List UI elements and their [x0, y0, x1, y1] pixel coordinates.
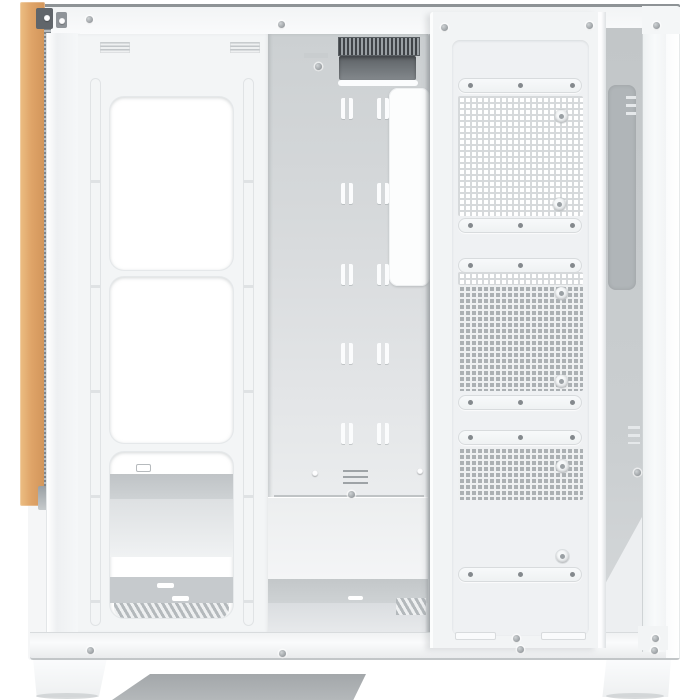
- screw-dot: [518, 263, 523, 268]
- psu-vent-stamp: [343, 470, 368, 484]
- screw-dot: [570, 223, 575, 228]
- screw-dot-light: [44, 15, 50, 21]
- top-right-corner: [642, 6, 680, 34]
- screw-dot: [518, 572, 523, 577]
- label-strip: [304, 53, 328, 58]
- thumbscrew-hole: [556, 550, 569, 563]
- fan-bracket-panel: [78, 34, 270, 633]
- mesh-panel: [430, 12, 598, 648]
- screw-dot: [468, 400, 473, 405]
- screw-dot: [468, 435, 473, 440]
- small-vent-slots: [626, 96, 636, 118]
- screw-dot: [518, 435, 523, 440]
- bracket-rail-right: [243, 78, 254, 626]
- cable-tie-slot: [377, 264, 389, 285]
- screw-head: [517, 646, 524, 653]
- interior-light-band: [110, 499, 233, 557]
- screw-dot-light: [417, 468, 423, 474]
- interior-lower-band: [110, 577, 233, 603]
- fan-cutout-2: [110, 277, 233, 443]
- photo-caption: White mid-tower PC case, open side view …: [0, 0, 1, 1]
- latch-mark: [136, 464, 151, 472]
- fan-cutout-1: [110, 97, 233, 270]
- screw-dot: [570, 83, 575, 88]
- screw-dot: [468, 572, 473, 577]
- screw-dot: [570, 263, 575, 268]
- cable-tie-slot: [377, 343, 389, 364]
- screw-head: [86, 16, 93, 23]
- under-case-shadow: [112, 674, 366, 700]
- perforation-grid: [458, 447, 583, 500]
- foot-shadow-right: [606, 693, 664, 699]
- thumbscrew-hole: [555, 287, 568, 300]
- rear-vent-fins: [338, 37, 420, 56]
- screw-head: [278, 21, 285, 28]
- screw-head: [348, 491, 355, 498]
- cable-tie-slot: [377, 98, 389, 119]
- wood-accent-strip: [20, 2, 45, 506]
- small-vent-slots: [628, 426, 640, 444]
- screw-head: [513, 635, 520, 642]
- screw-dot: [518, 223, 523, 228]
- screw-dot: [468, 263, 473, 268]
- motherboard-tray: [268, 34, 428, 634]
- screw-head: [651, 647, 658, 654]
- mounting-slot-bar: [458, 78, 582, 93]
- thumbscrew-hole: [556, 460, 569, 473]
- screw-head: [279, 650, 286, 657]
- screw-head: [586, 22, 593, 29]
- case-foot-right: [601, 658, 671, 697]
- bottom-vent-grille: [396, 598, 426, 615]
- screw-head: [653, 22, 660, 29]
- perforation-grid: [458, 272, 583, 285]
- cable-tie-slot: [341, 423, 353, 444]
- foot-shadow-left: [36, 693, 98, 699]
- screw-head: [315, 63, 322, 70]
- cable-tie-slot: [341, 183, 353, 204]
- floor-vent-grille: [114, 603, 229, 618]
- cable-tie-slot: [341, 98, 353, 119]
- mounting-slot-bar: [458, 395, 582, 410]
- cable-tie-slot: [377, 423, 389, 444]
- slot-mark: [172, 596, 189, 601]
- screw-head: [441, 24, 448, 31]
- io-recess: [339, 56, 416, 80]
- mounting-slot-bar: [458, 567, 582, 582]
- product-photo: White mid-tower PC case, open side view …: [0, 0, 700, 700]
- screw-dot: [518, 400, 523, 405]
- slot-mark: [157, 583, 174, 588]
- screw-dot: [570, 435, 575, 440]
- screw-dot: [468, 223, 473, 228]
- fan-cutout-3: [110, 452, 233, 618]
- mounting-slot-bar: [458, 258, 582, 273]
- bracket-rail-left: [90, 78, 101, 626]
- thumbscrew-hole: [553, 198, 566, 211]
- recess-highlight-bar: [338, 80, 418, 86]
- thumbscrew-hole: [555, 375, 568, 388]
- cable-tie-slot: [341, 264, 353, 285]
- panel-bottom-slot: [541, 632, 586, 640]
- cable-tie-slot: [377, 183, 389, 204]
- right-frame-column: [642, 6, 666, 652]
- screw-dot-light: [59, 18, 65, 24]
- vent-stamp: [100, 42, 130, 53]
- rear-interior-gap: [606, 28, 642, 642]
- mounting-slot-bar: [458, 218, 582, 233]
- interior-band: [110, 474, 233, 499]
- front-frame-strip: [46, 33, 80, 633]
- screw-head: [634, 469, 641, 476]
- cpu-cutout-plate: [389, 88, 430, 286]
- screw-dot: [570, 400, 575, 405]
- screw-head: [87, 647, 94, 654]
- thumbscrew-hole: [555, 110, 568, 123]
- screw-dot: [518, 83, 523, 88]
- slot-mark: [348, 596, 363, 600]
- panel-bottom-slot: [455, 632, 496, 640]
- case-foot-left: [33, 658, 107, 697]
- screw-dot: [570, 572, 575, 577]
- psu-shroud-side: [268, 497, 428, 579]
- mounting-slot-bar: [458, 430, 582, 445]
- mesh-panel-edge: [598, 12, 606, 648]
- interior-floor-highlight: [606, 500, 642, 642]
- vent-stamp: [230, 42, 260, 53]
- screw-head: [652, 635, 659, 642]
- cable-tie-slot: [341, 343, 353, 364]
- right-outer-edge: [666, 8, 680, 658]
- screw-dot-light: [312, 470, 318, 476]
- screw-dot: [468, 83, 473, 88]
